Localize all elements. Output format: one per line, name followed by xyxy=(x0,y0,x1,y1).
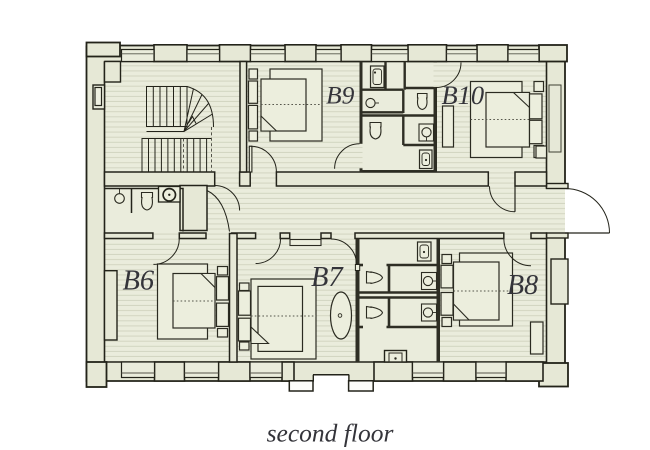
svg-text:second floor: second floor xyxy=(267,419,394,448)
svg-text:B6: B6 xyxy=(123,266,155,297)
svg-text:B7: B7 xyxy=(311,262,344,293)
svg-text:B10: B10 xyxy=(442,80,485,110)
svg-text:B9: B9 xyxy=(326,81,355,110)
svg-text:B8: B8 xyxy=(507,270,538,301)
